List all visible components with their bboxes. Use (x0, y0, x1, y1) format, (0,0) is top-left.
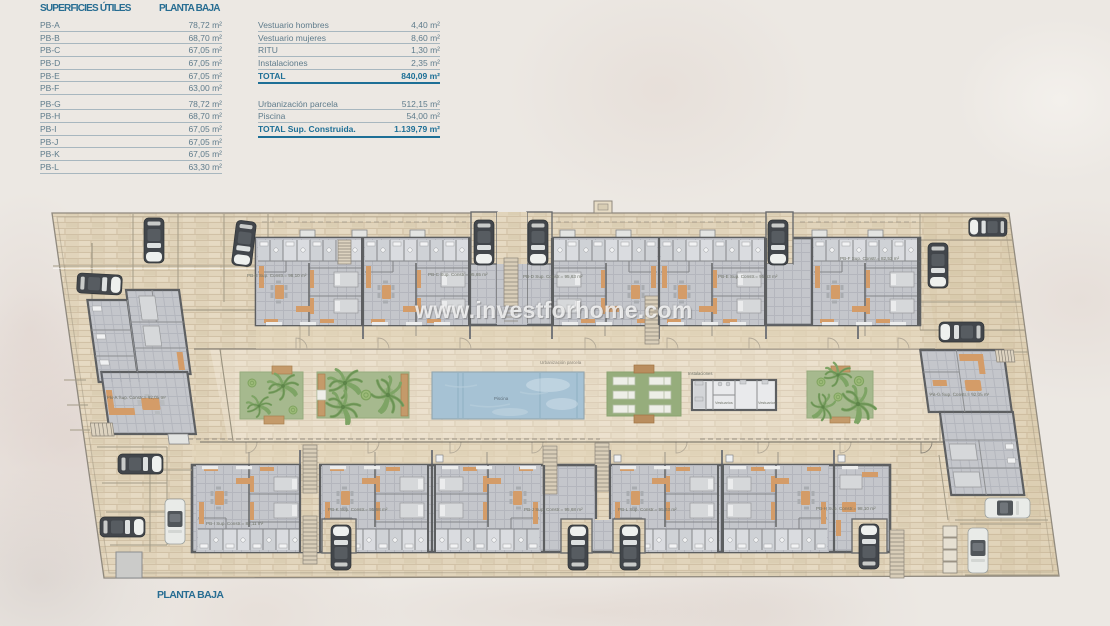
svg-text:Vestuarios: Vestuarios (715, 401, 733, 405)
svg-text:Vestuarios: Vestuarios (758, 401, 776, 405)
svg-text:PB-J Sup. Constr.= 95,68 m²: PB-J Sup. Constr.= 95,68 m² (524, 507, 583, 512)
svg-text:PB-E Sup. Constr.= 95,63 m²: PB-E Sup. Constr.= 95,63 m² (718, 274, 778, 279)
svg-text:PB-G Sup. Constr.= 92,05 m²: PB-G Sup. Constr.= 92,05 m² (929, 392, 990, 397)
svg-text:Piscina: Piscina (494, 396, 509, 401)
svg-text:PB-D Sup. Constr.= 95,63 m²: PB-D Sup. Constr.= 95,63 m² (523, 274, 583, 279)
svg-text:Urbanización parcela: Urbanización parcela (540, 360, 582, 365)
svg-text:PB-F Sup. Constr.= 82,53 m²: PB-F Sup. Constr.= 82,53 m² (840, 256, 900, 261)
svg-text:PB-L Sup. Constr.= 95,63 m²: PB-L Sup. Constr.= 95,63 m² (618, 507, 677, 512)
svg-text:PB-A Sup. Constr.= 92,05 m²: PB-A Sup. Constr.= 92,05 m² (106, 395, 166, 400)
svg-text:PB-K Sup. Constr.= 95,68 m²: PB-K Sup. Constr.= 95,68 m² (328, 507, 388, 512)
svg-text:PB-C Sup. Constr.= 95,65 m²: PB-C Sup. Constr.= 95,65 m² (428, 272, 488, 277)
svg-text:PB-I Sup. Constr.= 82,11 m²: PB-I Sup. Constr.= 82,11 m² (206, 521, 264, 526)
svg-text:Instalaciones: Instalaciones (688, 371, 712, 376)
svg-text:PB-B Sup. Constr.= 98,10 m²: PB-B Sup. Constr.= 98,10 m² (247, 273, 307, 278)
svg-text:PB-H Sup. Constr.= 98,10 m²: PB-H Sup. Constr.= 98,10 m² (816, 506, 876, 511)
